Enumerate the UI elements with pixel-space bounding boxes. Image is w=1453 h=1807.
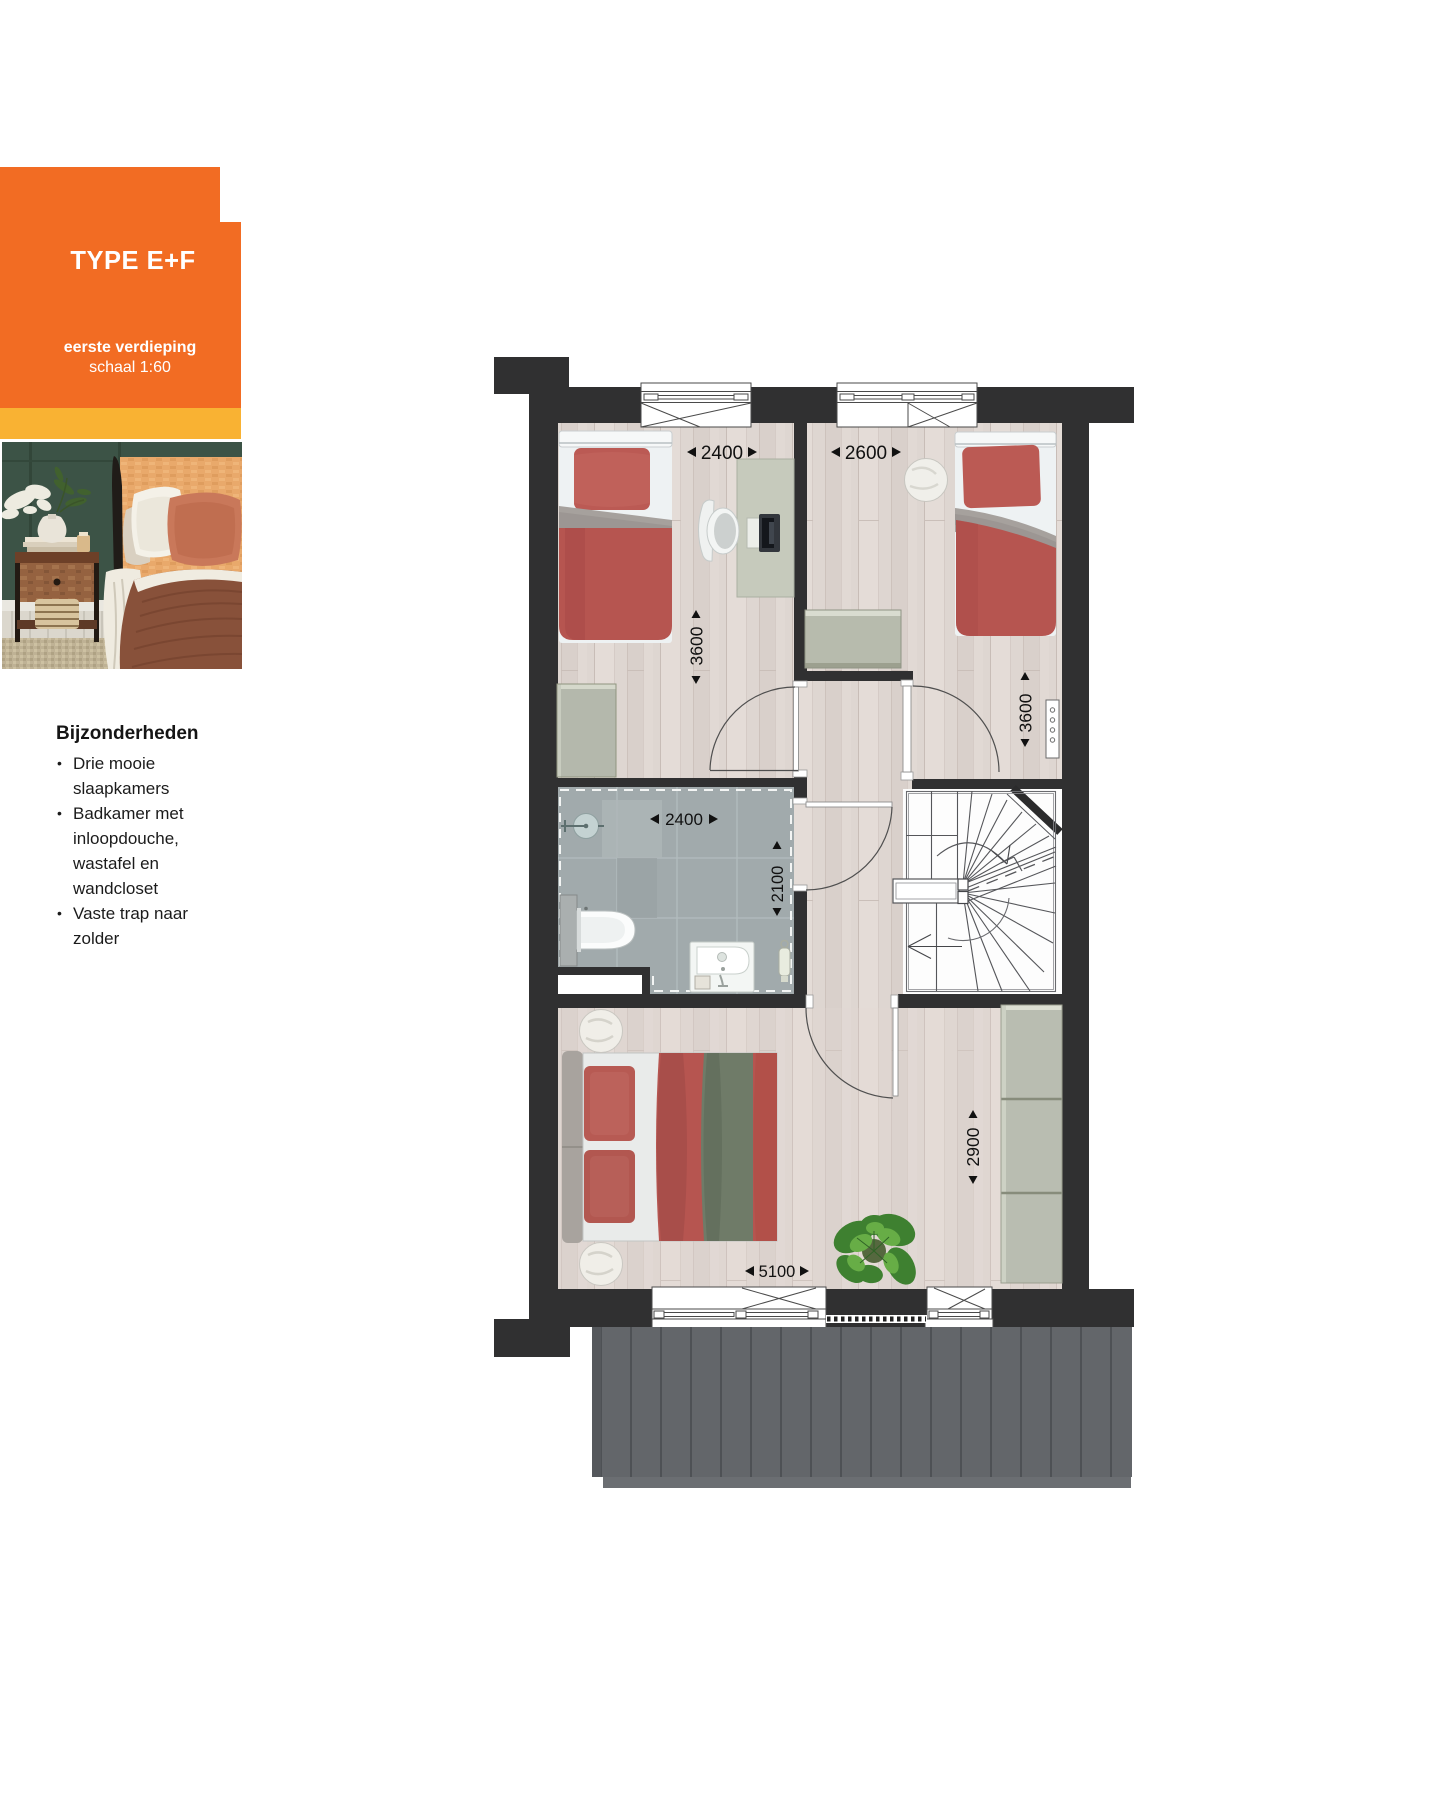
svg-text:3600: 3600 xyxy=(687,626,707,665)
svg-text:2900: 2900 xyxy=(963,1127,983,1166)
svg-text:5100: 5100 xyxy=(759,1263,796,1281)
svg-text:2600: 2600 xyxy=(845,443,887,464)
svg-text:3600: 3600 xyxy=(1016,693,1036,732)
svg-text:2100: 2100 xyxy=(769,866,787,903)
svg-text:2400: 2400 xyxy=(701,443,743,464)
svg-text:2400: 2400 xyxy=(665,810,703,829)
